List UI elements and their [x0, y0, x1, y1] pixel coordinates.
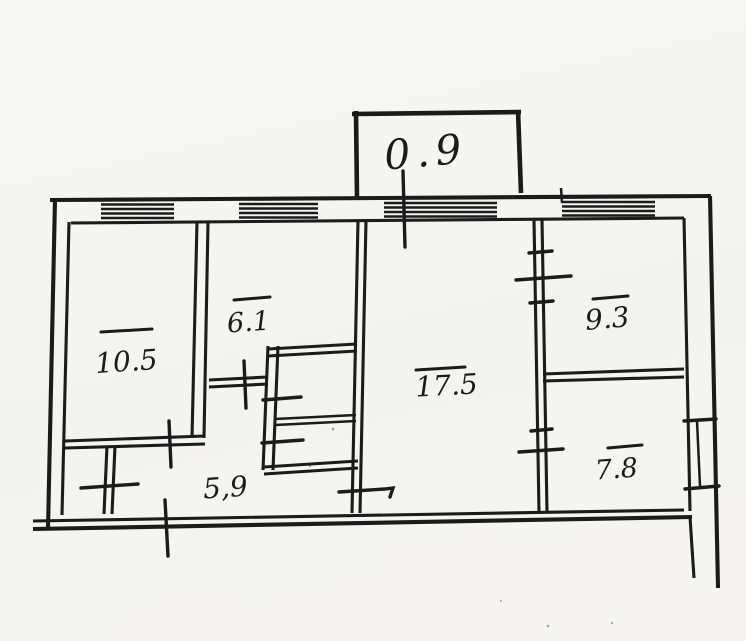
window-top-3	[384, 203, 497, 217]
room-7-8	[545, 383, 687, 509]
wall-closet-partition	[104, 446, 115, 514]
window-top-1	[101, 205, 174, 219]
room-closet	[66, 450, 104, 512]
floor-plan-scan: 0.9 10.5 6.1 17.5 9.3 7.8 5,9	[0, 0, 746, 641]
window-top-2	[239, 204, 318, 218]
room-balcony	[358, 116, 516, 196]
room-9-3	[544, 221, 683, 371]
room-17-5	[367, 224, 533, 510]
room-6-1	[210, 224, 356, 376]
room-toilet	[280, 358, 354, 414]
window-top-4	[561, 188, 655, 216]
room-areas	[66, 116, 687, 512]
wall-kitchen-hallway	[209, 377, 268, 387]
room-bathroom	[280, 427, 356, 460]
floor-plan-drawing: 0.9 10.5 6.1 17.5 9.3 7.8 5,9	[0, 0, 746, 641]
